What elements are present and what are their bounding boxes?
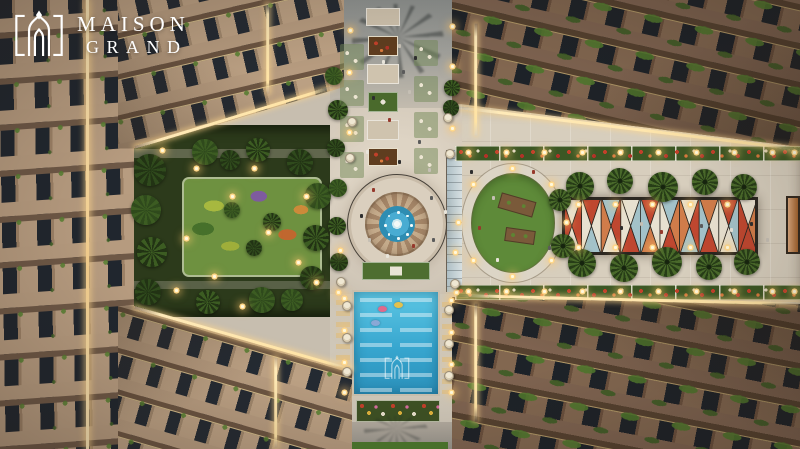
light-glow [211, 273, 218, 280]
person-dot [478, 226, 481, 230]
palm-tree [549, 189, 571, 211]
light-glow [617, 288, 624, 295]
parasol-umbrella [445, 149, 455, 159]
light-glow [448, 329, 455, 336]
person-dot [496, 258, 499, 262]
light-glow [724, 244, 731, 251]
person-dot [366, 150, 369, 154]
fountain-jet [410, 224, 413, 227]
tree-canopy [249, 287, 275, 313]
light-glow [541, 149, 548, 156]
light-glow [465, 288, 472, 295]
person-dot [418, 140, 421, 144]
light-glow [341, 389, 348, 396]
light-glow [449, 125, 456, 132]
parasol-umbrella [345, 153, 355, 163]
tree-canopy [196, 290, 220, 314]
person-dot [428, 168, 431, 172]
brand-name-line1: MAISON [77, 13, 190, 37]
light-glow [455, 219, 462, 226]
light-glow [313, 279, 320, 286]
tree-canopy [137, 237, 167, 267]
facade-texture [452, 288, 800, 449]
palm-tree [607, 168, 633, 194]
maison-grand-monogram [10, 6, 68, 64]
tree-canopy [220, 150, 240, 170]
palm-tree [652, 247, 682, 277]
maison-grand-logo: MAISON GRAND [10, 6, 190, 64]
light-glow [575, 201, 582, 208]
tree-canopy [303, 225, 329, 251]
palm-shadow [364, 416, 428, 444]
lawn-planter-bed [497, 192, 536, 217]
light-glow [449, 23, 456, 30]
parasol-umbrella [342, 301, 352, 311]
scene: MAISON GRAND [0, 0, 800, 449]
person-dot [360, 214, 363, 218]
person-dot [532, 170, 535, 174]
person-dot [398, 44, 401, 48]
parasol-umbrella [342, 367, 352, 377]
tree-canopy [300, 266, 324, 290]
light-glow [337, 247, 344, 254]
light-glow [724, 201, 731, 208]
light-glow [617, 149, 624, 156]
light-glow [509, 165, 516, 172]
light-glow [548, 257, 555, 264]
facade-led-strip [86, 0, 89, 449]
maison-grand-monogram-watermark [382, 352, 412, 384]
light-glow [448, 297, 455, 304]
person-dot [492, 196, 495, 200]
tree-canopy [134, 154, 166, 186]
building-bottom-right-wing [452, 288, 800, 449]
person-dot [402, 70, 405, 74]
light-glow [687, 244, 694, 251]
person-dot [548, 246, 551, 250]
boulevard-planter-box [368, 36, 398, 56]
parasol-umbrella [444, 339, 454, 349]
person-dot [766, 238, 769, 242]
parasol-umbrella [443, 113, 453, 123]
boulevard-planter-box [368, 148, 398, 166]
light-glow [159, 147, 166, 154]
light-glow [731, 149, 738, 156]
tree-canopy [246, 138, 270, 162]
circular-fountain [347, 174, 447, 274]
palm-tree [648, 172, 678, 202]
light-glow [341, 359, 348, 366]
light-glow [239, 303, 246, 310]
light-glow [347, 27, 354, 34]
palm-tree [696, 254, 722, 280]
building-left-slab [0, 0, 134, 449]
cafe-seating-mat [414, 148, 438, 174]
person-dot [660, 230, 663, 234]
light-glow [173, 287, 180, 294]
brand-name-line2: GRAND [77, 37, 190, 57]
light-glow [448, 361, 455, 368]
tree-canopy [287, 149, 313, 175]
person-dot [412, 244, 415, 248]
fountain-jet [384, 224, 387, 227]
light-glow [769, 149, 776, 156]
light-glow [470, 181, 477, 188]
light-glow [465, 149, 472, 156]
palm-tree [734, 249, 760, 275]
light-glow [579, 288, 586, 295]
lawn-strip [344, 442, 448, 449]
person-dot [700, 224, 703, 228]
light-glow [193, 165, 200, 172]
light-glow [563, 219, 570, 226]
light-glow [649, 201, 656, 208]
light-glow [448, 389, 455, 396]
palm-tree [731, 174, 757, 200]
person-dot [398, 160, 401, 164]
person-dot [444, 210, 447, 214]
light-glow [612, 201, 619, 208]
cafe-seating-mat [414, 76, 438, 102]
light-glow [541, 288, 548, 295]
light-glow [453, 289, 460, 296]
person-dot [414, 56, 417, 60]
lawn-planter-bed [504, 227, 536, 245]
light-glow [183, 235, 190, 242]
person-dot [408, 90, 411, 94]
fountain-jet [397, 211, 400, 214]
tree-canopy [263, 213, 281, 231]
hedge-planter-box [362, 262, 430, 280]
parasol-umbrella [450, 279, 460, 289]
cafe-seating-mat [340, 44, 364, 70]
roof-led-strip [475, 23, 478, 135]
palm-tree [692, 169, 718, 195]
tree-canopy [192, 139, 218, 165]
person-dot [470, 170, 473, 174]
boulevard-planter-box [367, 64, 399, 84]
cafe-seating-mat [414, 40, 438, 66]
light-glow [452, 249, 459, 256]
person-dot [750, 222, 753, 226]
person-dot [640, 222, 643, 226]
light-glow [791, 288, 798, 295]
light-glow [265, 229, 272, 236]
person-dot [430, 196, 433, 200]
parasol-umbrella [444, 371, 454, 381]
person-dot [388, 118, 391, 122]
tree-canopy [328, 217, 346, 235]
tree-canopy [281, 289, 303, 311]
light-glow [509, 273, 516, 280]
light-glow [346, 129, 353, 136]
light-glow [295, 259, 302, 266]
light-glow [470, 257, 477, 264]
roof-led-strip [475, 303, 478, 421]
fountain-jet [406, 233, 409, 236]
palm-tree [551, 234, 575, 258]
light-glow [229, 193, 236, 200]
person-dot [730, 228, 733, 232]
orange-accent-wall [786, 196, 800, 254]
planter-emblem [390, 267, 402, 276]
light-glow [731, 288, 738, 295]
fountain-jet [388, 233, 391, 236]
light-glow [335, 289, 342, 296]
person-dot [368, 238, 371, 242]
tree-canopy [135, 279, 161, 305]
tree-canopy [246, 240, 262, 256]
tree-canopy [329, 179, 347, 197]
logo-text: MAISON GRAND [77, 13, 190, 57]
pool-float [378, 306, 387, 312]
person-dot [382, 60, 385, 64]
person-dot [620, 226, 623, 230]
roof-led-strip [267, 3, 270, 93]
person-dot [372, 96, 375, 100]
light-glow [693, 149, 700, 156]
light-glow [655, 149, 662, 156]
pool-float [394, 302, 403, 308]
fountain-jet [406, 215, 409, 218]
light-glow [503, 149, 510, 156]
light-glow [687, 201, 694, 208]
light-glow [693, 288, 700, 295]
cafe-seating-mat [340, 80, 364, 106]
light-glow [655, 288, 662, 295]
light-glow [449, 63, 456, 70]
light-glow [346, 69, 353, 76]
light-glow [548, 181, 555, 188]
tree-canopy [330, 253, 348, 271]
light-glow [649, 244, 656, 251]
person-dot [432, 238, 435, 242]
tree-canopy [444, 80, 460, 96]
tree-canopy [224, 202, 240, 218]
parasol-umbrella [347, 117, 357, 127]
light-glow [612, 244, 619, 251]
roof-led-strip [275, 357, 278, 447]
tree-canopy [131, 195, 161, 225]
boulevard-planter-box [366, 8, 400, 26]
fountain-jet [397, 237, 400, 240]
parasol-umbrella [336, 277, 346, 287]
light-glow [579, 149, 586, 156]
light-glow [303, 193, 310, 200]
pool-float [371, 320, 380, 326]
light-glow [251, 165, 258, 172]
light-glow [575, 244, 582, 251]
person-dot [386, 254, 389, 258]
cafe-seating-mat [414, 112, 438, 138]
palm-tree [610, 254, 638, 282]
light-glow [791, 149, 798, 156]
person-dot [372, 188, 375, 192]
boulevard-planter-box [368, 92, 398, 112]
parasol-umbrella [444, 305, 454, 315]
boulevard-planter-box [367, 120, 399, 140]
light-glow [503, 288, 510, 295]
facade-texture [0, 0, 134, 449]
parasol-umbrella [342, 333, 352, 343]
light-glow [769, 288, 776, 295]
